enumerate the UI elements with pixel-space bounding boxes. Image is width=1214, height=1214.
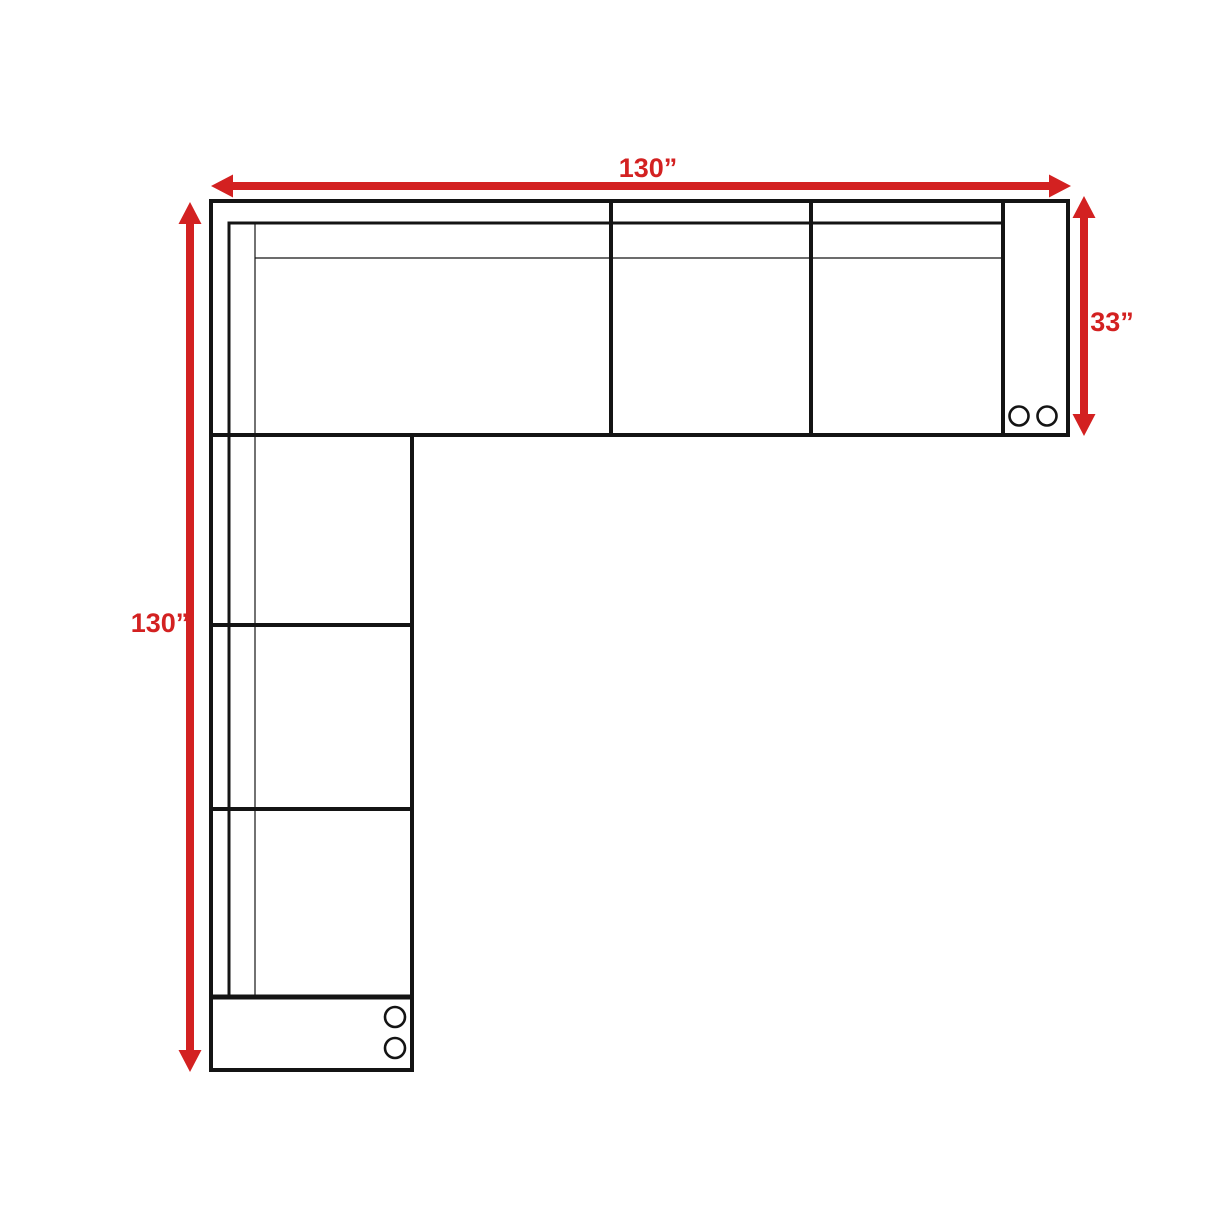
height-dimension-label: 130” xyxy=(131,608,190,638)
sofa-linework xyxy=(211,201,1068,1070)
sofa-dimension-diagram: 130” 130” 33” xyxy=(0,0,1214,1214)
caster-circle-right-armrest-2 xyxy=(1038,407,1057,426)
sofa-outline xyxy=(211,201,1068,1070)
caster-circle-bottom-armrest-1 xyxy=(385,1007,405,1027)
diagram-canvas: 130” 130” 33” xyxy=(0,0,1214,1214)
caster-circle-bottom-armrest-2 xyxy=(385,1038,405,1058)
width-dimension-label: 130” xyxy=(619,153,678,183)
caster-circle-right-armrest-1 xyxy=(1010,407,1029,426)
depth-dimension-label: 33” xyxy=(1090,307,1134,337)
